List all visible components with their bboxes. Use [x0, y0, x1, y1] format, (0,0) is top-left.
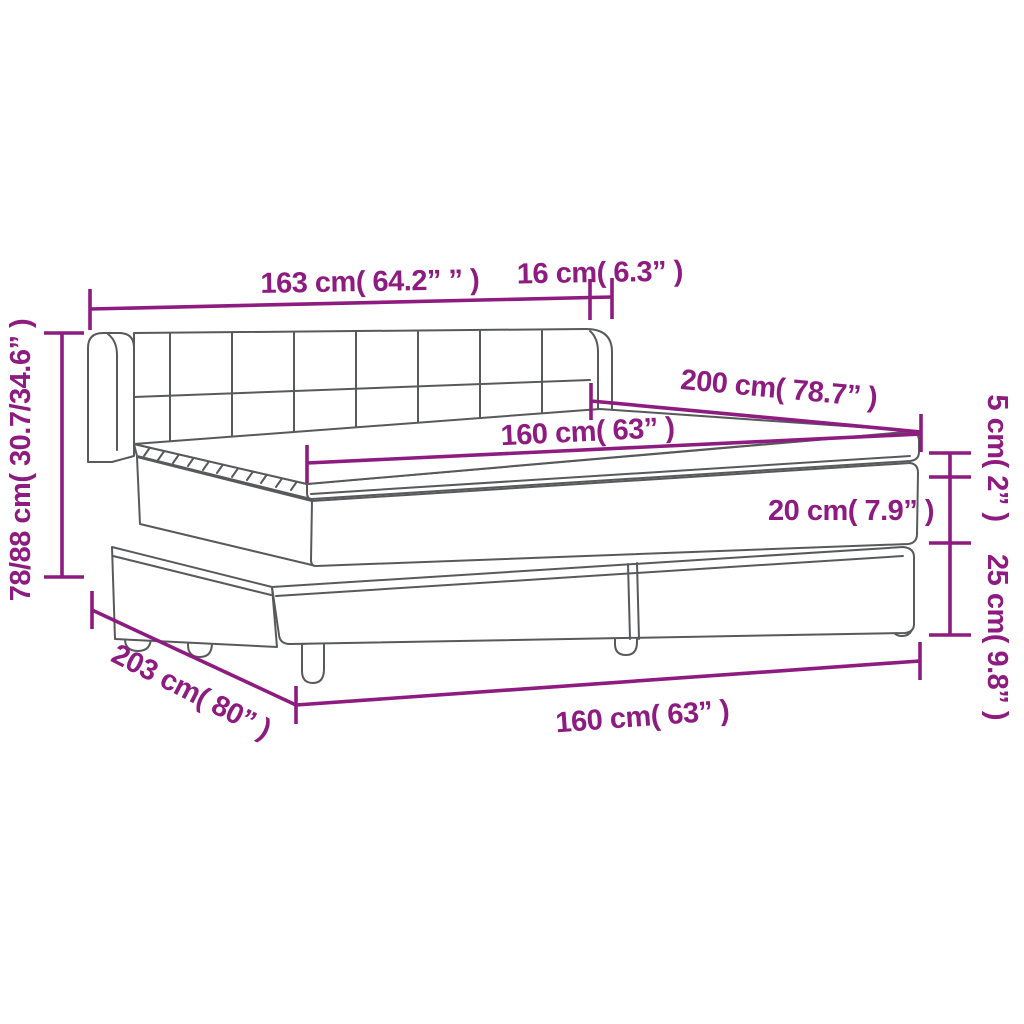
dim-ticks-headboard-height: [44, 333, 84, 577]
dim-line-width-160-bottom: [296, 661, 920, 705]
label-mattress-width-bottom: 160 cm( 63” ): [554, 695, 730, 740]
label-topper-thickness: 5 cm( 2” ): [981, 394, 1013, 521]
label-mattress-thickness: 20 cm( 7.9” ): [768, 495, 934, 527]
label-headboard-height: 78/88 cm( 30.7/34.6” ): [5, 319, 37, 601]
dim-line-total-width: [90, 297, 612, 309]
diagram-canvas: 163 cm( 64.2” ” ) 16 cm( 6.3” ) 78/88 cm…: [0, 0, 1024, 1024]
label-total-width: 163 cm( 64.2” ” ): [260, 264, 479, 300]
label-bed-length-top: 200 cm( 78.7” ): [679, 364, 878, 414]
headboard-left-ear: [88, 333, 134, 462]
bed-dimension-diagram: 163 cm( 64.2” ” ) 16 cm( 6.3” ) 78/88 cm…: [0, 0, 1024, 1024]
label-base-height: 25 cm( 9.8” ): [981, 554, 1013, 720]
bed-leg: [302, 642, 324, 683]
label-headboard-overhang: 16 cm( 6.3” ): [517, 256, 684, 291]
